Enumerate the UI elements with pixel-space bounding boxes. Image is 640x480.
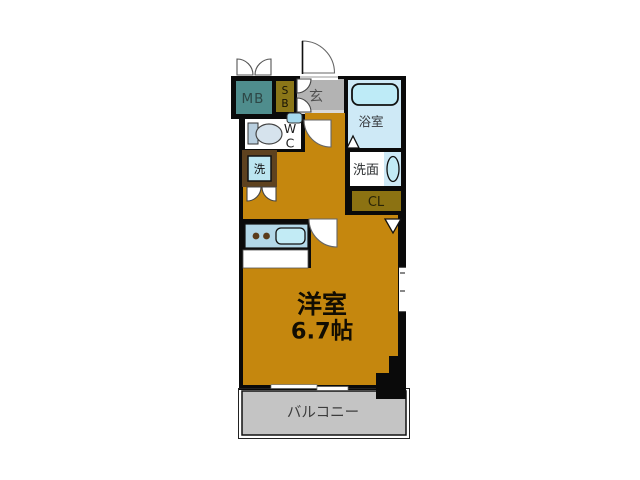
genkan-label: 玄: [309, 88, 323, 105]
balcony-window: [271, 385, 317, 389]
washroom-label: 洗面: [353, 163, 379, 178]
wc-label-line1: W: [284, 121, 296, 136]
kitchen-sink-icon: [276, 228, 305, 244]
washer-label: 洗: [254, 162, 266, 176]
main-room-size: 6.7帖: [291, 319, 353, 345]
bathtub-icon: [352, 84, 398, 105]
floor-plan-page: MB S B 玄 浴室 W C 洗 洗面 CL 洋室 6.7帖 バルコニー: [0, 0, 640, 480]
side-window: [399, 267, 406, 312]
washroom-sink-icon: [387, 157, 399, 182]
sb-label-line2: B: [281, 98, 288, 110]
sb-label-line1: S: [282, 85, 289, 97]
toilet-icon: [256, 124, 282, 144]
closet-label: CL: [368, 195, 385, 210]
mb-door-flap-icon: [237, 59, 253, 75]
burner-icon: [253, 233, 260, 240]
main-room-name: 洋室: [297, 290, 347, 319]
mb-label: MB: [242, 91, 265, 107]
kitchen-cabinet: [243, 250, 308, 268]
entrance-door-arc-icon: [303, 41, 335, 73]
wc-label-line2: C: [286, 136, 295, 151]
burner-icon: [263, 233, 270, 240]
balcony-window: [317, 387, 348, 391]
balcony-label: バルコニー: [287, 405, 359, 421]
floor-plan-svg: MB S B 玄 浴室 W C 洗 洗面 CL 洋室 6.7帖 バルコニー: [0, 0, 640, 480]
mb-door-flap-icon: [255, 59, 271, 75]
hall-floor: [277, 152, 305, 219]
bathroom-label: 浴室: [358, 114, 383, 129]
